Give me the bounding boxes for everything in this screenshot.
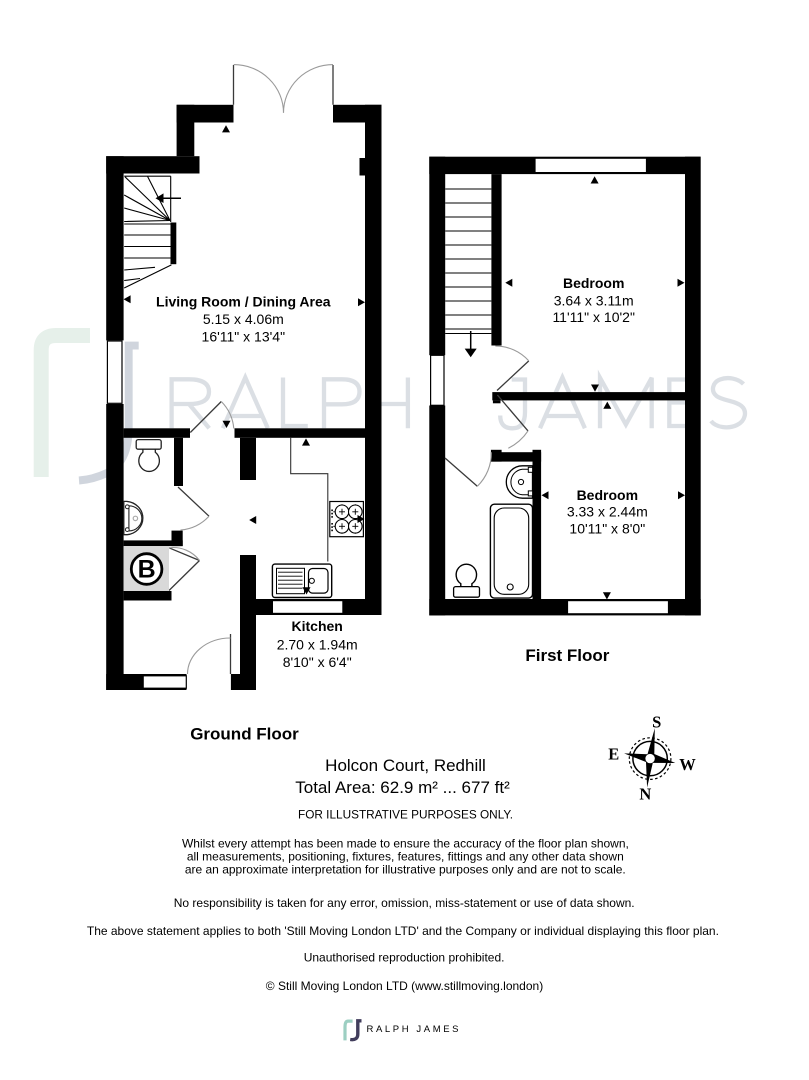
svg-text:3.64 x 3.11m: 3.64 x 3.11m: [554, 292, 634, 308]
svg-text:3.33 x 2.44m: 3.33 x 2.44m: [567, 503, 648, 519]
svg-text:16'11" x 13'4": 16'11" x 13'4": [202, 329, 286, 345]
svg-text:are an approximate interpretat: are an approximate interpretation for il…: [185, 862, 626, 876]
svg-text:S: S: [652, 713, 661, 732]
svg-text:10'11" x 8'0": 10'11" x 8'0": [569, 520, 645, 536]
svg-text:E: E: [608, 745, 619, 764]
svg-text:RALPH JAMES: RALPH JAMES: [367, 1024, 462, 1035]
svg-text:5.15 x 4.06m: 5.15 x 4.06m: [203, 311, 284, 327]
svg-text:Bedroom: Bedroom: [577, 487, 638, 503]
svg-text:Bedroom: Bedroom: [563, 275, 624, 291]
svg-text:© Still Moving London LTD (www: © Still Moving London LTD (www.stillmovi…: [266, 979, 543, 993]
svg-text:Unauthorised reproduction proh: Unauthorised reproduction prohibited.: [304, 951, 505, 965]
svg-text:11'11" x 10'2": 11'11" x 10'2": [552, 309, 635, 325]
svg-text:W: W: [679, 755, 696, 774]
svg-text:No responsibility is taken for: No responsibility is taken for any error…: [174, 896, 635, 910]
svg-text:First Floor: First Floor: [525, 646, 609, 665]
svg-text:8'10" x 6'4": 8'10" x 6'4": [283, 654, 352, 670]
svg-text:Holcon Court, Redhill: Holcon Court, Redhill: [325, 756, 486, 775]
svg-text:Living Room / Dining Area: Living Room / Dining Area: [156, 293, 331, 309]
svg-text:FOR ILLUSTRATIVE PURPOSES ONLY: FOR ILLUSTRATIVE PURPOSES ONLY.: [298, 807, 513, 821]
svg-text:Ground Floor: Ground Floor: [190, 725, 299, 744]
svg-text:B: B: [138, 556, 156, 584]
svg-text:Total Area: 62.9 m² ... 677 ft: Total Area: 62.9 m² ... 677 ft²: [295, 778, 510, 797]
svg-text:all measurements, positioning,: all measurements, positioning, fixtures,…: [187, 850, 624, 864]
svg-text:Kitchen: Kitchen: [292, 618, 343, 634]
svg-text:The above statement applies to: The above statement applies to both 'Sti…: [87, 924, 719, 938]
svg-text:N: N: [639, 785, 651, 804]
svg-text:2.70 x 1.94m: 2.70 x 1.94m: [277, 637, 358, 653]
